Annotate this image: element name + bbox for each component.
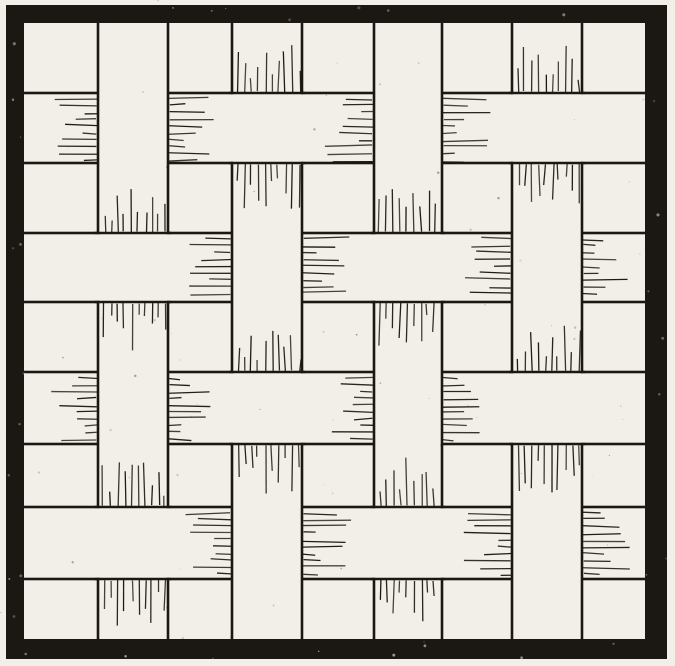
frame-speck xyxy=(19,574,22,577)
frame-speck xyxy=(12,99,14,101)
frame-speck xyxy=(387,9,390,12)
paper-speck xyxy=(128,477,130,479)
hatch-line xyxy=(146,213,147,233)
frame-speck xyxy=(520,656,523,659)
frame-speck xyxy=(357,6,360,9)
hatch-line xyxy=(471,246,510,247)
paper-speck xyxy=(166,607,168,609)
hatch-line xyxy=(566,163,567,176)
hatch-line xyxy=(582,259,616,260)
paper-speck xyxy=(109,429,112,432)
hatch-line xyxy=(354,397,374,398)
hatch-line xyxy=(169,425,182,426)
hatch-line xyxy=(414,481,415,505)
hatch-line xyxy=(380,579,381,600)
frame-speck xyxy=(392,654,395,657)
paper-speck xyxy=(62,357,64,359)
weave-pattern-figure xyxy=(0,0,675,666)
paper-speck xyxy=(521,473,522,474)
paper-speck xyxy=(620,405,621,406)
hatch-line xyxy=(304,560,321,561)
hatch-line xyxy=(346,99,372,100)
paper-speck xyxy=(176,474,178,476)
paper-speck xyxy=(657,318,659,320)
hatch-line xyxy=(303,546,343,547)
frame-speck xyxy=(225,8,226,9)
paper-speck xyxy=(418,62,419,63)
crossing-horizontal-over xyxy=(371,234,444,300)
hatch-line xyxy=(386,580,387,603)
hatch-line xyxy=(566,46,567,93)
hatch-line xyxy=(85,432,96,433)
crossing-horizontal-over xyxy=(95,508,170,577)
paper-speck xyxy=(484,304,486,306)
frame-speck xyxy=(172,7,174,9)
hatch-line xyxy=(170,112,205,113)
frame-band-right xyxy=(645,5,667,659)
hatch-line xyxy=(291,164,292,208)
hatch-line xyxy=(572,59,573,92)
hatch-line xyxy=(132,581,133,602)
paper-speck xyxy=(67,147,68,148)
paper-speck xyxy=(519,259,521,261)
paper-speck xyxy=(259,409,260,410)
paper-speck xyxy=(469,229,471,231)
hatch-line xyxy=(378,199,379,232)
paper-speck xyxy=(639,253,640,254)
frame-speck xyxy=(19,243,22,246)
hatch-line xyxy=(583,244,595,245)
frame-speck xyxy=(8,578,10,580)
paper-speck xyxy=(179,569,180,570)
paper-speck xyxy=(323,484,324,485)
hatch-line xyxy=(238,52,239,92)
hatch-line xyxy=(84,160,97,161)
hatch-line xyxy=(583,240,604,241)
hatch-line xyxy=(76,119,96,120)
frame-speck xyxy=(8,474,11,477)
paper-speck xyxy=(403,641,404,642)
frame-band-top xyxy=(6,5,667,23)
paper-speck xyxy=(188,16,189,17)
hatch-line xyxy=(217,573,231,574)
frame-speck xyxy=(661,337,664,340)
paper-speck xyxy=(326,95,328,97)
hatch-line xyxy=(61,440,96,441)
hatch-line xyxy=(553,74,554,92)
frame-speck xyxy=(424,641,425,642)
paper-speck xyxy=(191,416,193,418)
hatch-line xyxy=(345,377,373,378)
hatch-line xyxy=(467,520,511,521)
hatch-line xyxy=(443,133,457,134)
paper-speck xyxy=(230,636,232,638)
hatch-line xyxy=(205,238,230,239)
frame-speck xyxy=(13,615,16,618)
paper-speck xyxy=(179,359,180,360)
frame-speck xyxy=(212,658,213,659)
crossing-horizontal-over xyxy=(371,508,444,577)
paper-speck xyxy=(253,191,255,193)
frame-band-left xyxy=(6,5,24,659)
paper-speck xyxy=(197,404,198,405)
paper-speck xyxy=(609,455,610,456)
hatch-line xyxy=(518,68,519,93)
paper-speck xyxy=(101,318,102,319)
hatch-line xyxy=(60,105,97,106)
frame-speck xyxy=(22,372,25,375)
hatch-line xyxy=(145,581,146,609)
hatch-line xyxy=(277,165,278,179)
paper-speck xyxy=(497,197,500,200)
hatch-line xyxy=(435,204,436,232)
hatch-line xyxy=(582,512,600,513)
frame-speck xyxy=(24,653,27,656)
frame-speck xyxy=(562,13,565,16)
paper-speck xyxy=(380,382,382,384)
frame-speck xyxy=(211,10,213,12)
hatch-line xyxy=(214,252,230,253)
paper-speck xyxy=(12,286,13,287)
hatch-line xyxy=(343,126,373,127)
frame-speck xyxy=(424,644,427,647)
frame-speck xyxy=(665,558,667,560)
hatch-line xyxy=(426,304,427,315)
crossing-horizontal-over xyxy=(95,234,170,300)
paper-speck xyxy=(166,166,168,168)
hatch-line xyxy=(546,356,547,371)
paper-speck xyxy=(574,119,575,120)
hatch-line xyxy=(159,472,160,505)
hatch-line xyxy=(239,445,240,477)
hatch-line xyxy=(304,260,339,261)
paper-speck xyxy=(379,83,381,85)
paper-speck xyxy=(629,181,631,183)
paper-speck xyxy=(476,417,477,418)
frame-speck xyxy=(647,290,649,292)
paper-speck xyxy=(154,319,156,321)
hatch-line xyxy=(292,446,293,492)
paper-speck xyxy=(22,617,23,618)
hatch-line xyxy=(286,163,287,193)
paper-speck xyxy=(607,544,608,545)
hatch-line xyxy=(250,78,251,92)
paper-speck xyxy=(649,236,651,238)
paper-speck xyxy=(134,375,136,377)
hatch-line xyxy=(193,525,232,526)
paper-speck xyxy=(657,331,659,333)
paper-speck xyxy=(467,405,469,407)
hatch-line xyxy=(385,195,386,231)
paper-speck xyxy=(441,584,443,586)
plain-weave-woodcut-illustration xyxy=(0,0,675,666)
paper-speck xyxy=(437,171,439,173)
crossing-horizontal-over xyxy=(509,373,584,442)
paper-speck xyxy=(6,436,7,437)
hatch-line xyxy=(278,445,279,482)
frame-speck xyxy=(288,18,291,21)
hatch-line xyxy=(298,445,299,467)
frame-speck xyxy=(612,643,614,645)
frame-speck xyxy=(646,574,648,576)
hatch-line xyxy=(386,480,387,507)
paper-speck xyxy=(273,604,275,606)
hatch-line xyxy=(110,492,111,506)
hatch-line xyxy=(518,445,519,491)
hatch-line xyxy=(125,471,126,506)
hatch-line xyxy=(237,164,238,181)
hatch-line xyxy=(571,352,572,371)
frame-speck xyxy=(12,247,14,249)
paper-speck xyxy=(551,325,552,326)
paper-speck xyxy=(323,331,325,333)
frame-speck xyxy=(13,42,16,45)
paper-speck xyxy=(574,326,576,328)
hatch-line xyxy=(105,216,106,233)
hatch-line xyxy=(350,438,373,439)
paper-speck xyxy=(622,419,623,420)
paper-speck xyxy=(642,99,644,101)
hatch-line xyxy=(360,391,372,392)
paper-speck xyxy=(72,561,74,563)
paper-speck xyxy=(142,91,143,92)
hatch-line xyxy=(399,198,400,231)
hatch-line xyxy=(303,287,333,288)
hatch-line xyxy=(299,165,300,208)
hatch-line xyxy=(169,406,210,407)
paper-speck xyxy=(182,637,185,640)
hatch-line xyxy=(442,385,464,386)
paper-speck xyxy=(170,439,171,440)
hatch-line xyxy=(470,292,511,293)
hatch-line xyxy=(414,304,415,326)
paper-speck xyxy=(337,63,338,64)
frame-band-bottom xyxy=(6,639,667,659)
crossing-horizontal-over xyxy=(509,94,584,161)
frame-speck xyxy=(18,423,20,425)
frame-speck xyxy=(658,393,660,395)
paper-speck xyxy=(592,474,593,475)
paper-speck xyxy=(428,398,429,399)
hatch-line xyxy=(583,294,597,295)
hatch-line xyxy=(216,554,232,555)
hatch-line xyxy=(271,164,272,181)
paper-speck xyxy=(332,492,334,494)
paper-speck xyxy=(573,338,575,340)
frame-speck xyxy=(124,655,127,658)
hatch-line xyxy=(392,189,393,232)
hatch-line xyxy=(348,119,373,120)
hatch-line xyxy=(579,445,580,465)
hatch-line xyxy=(190,294,230,295)
frame-speck xyxy=(656,213,659,216)
paper-speck xyxy=(333,419,334,420)
hatch-line xyxy=(327,154,372,155)
hatch-line xyxy=(583,279,628,280)
paper-speck xyxy=(440,444,442,446)
hatch-line xyxy=(144,303,145,316)
hatch-line xyxy=(557,163,558,179)
hatch-line xyxy=(427,580,428,592)
hatch-line xyxy=(303,265,344,266)
hatch-line xyxy=(132,465,133,507)
paper-speck xyxy=(171,333,172,334)
crossing-horizontal-over xyxy=(229,373,304,442)
hatch-line xyxy=(250,336,251,372)
frame-speck xyxy=(20,137,21,138)
paper-speck xyxy=(340,568,342,570)
paper-speck xyxy=(356,334,358,336)
hatch-line xyxy=(266,164,267,206)
hatch-line xyxy=(303,574,318,575)
paper-speck xyxy=(313,128,315,130)
hatch-line xyxy=(303,520,351,521)
hatch-line xyxy=(169,398,181,399)
frame-speck xyxy=(653,100,655,102)
paper-speck xyxy=(646,222,648,224)
crossing-horizontal-over xyxy=(229,94,304,161)
paper-speck xyxy=(38,471,40,473)
frame-speck xyxy=(318,651,320,653)
hatch-line xyxy=(152,485,153,505)
